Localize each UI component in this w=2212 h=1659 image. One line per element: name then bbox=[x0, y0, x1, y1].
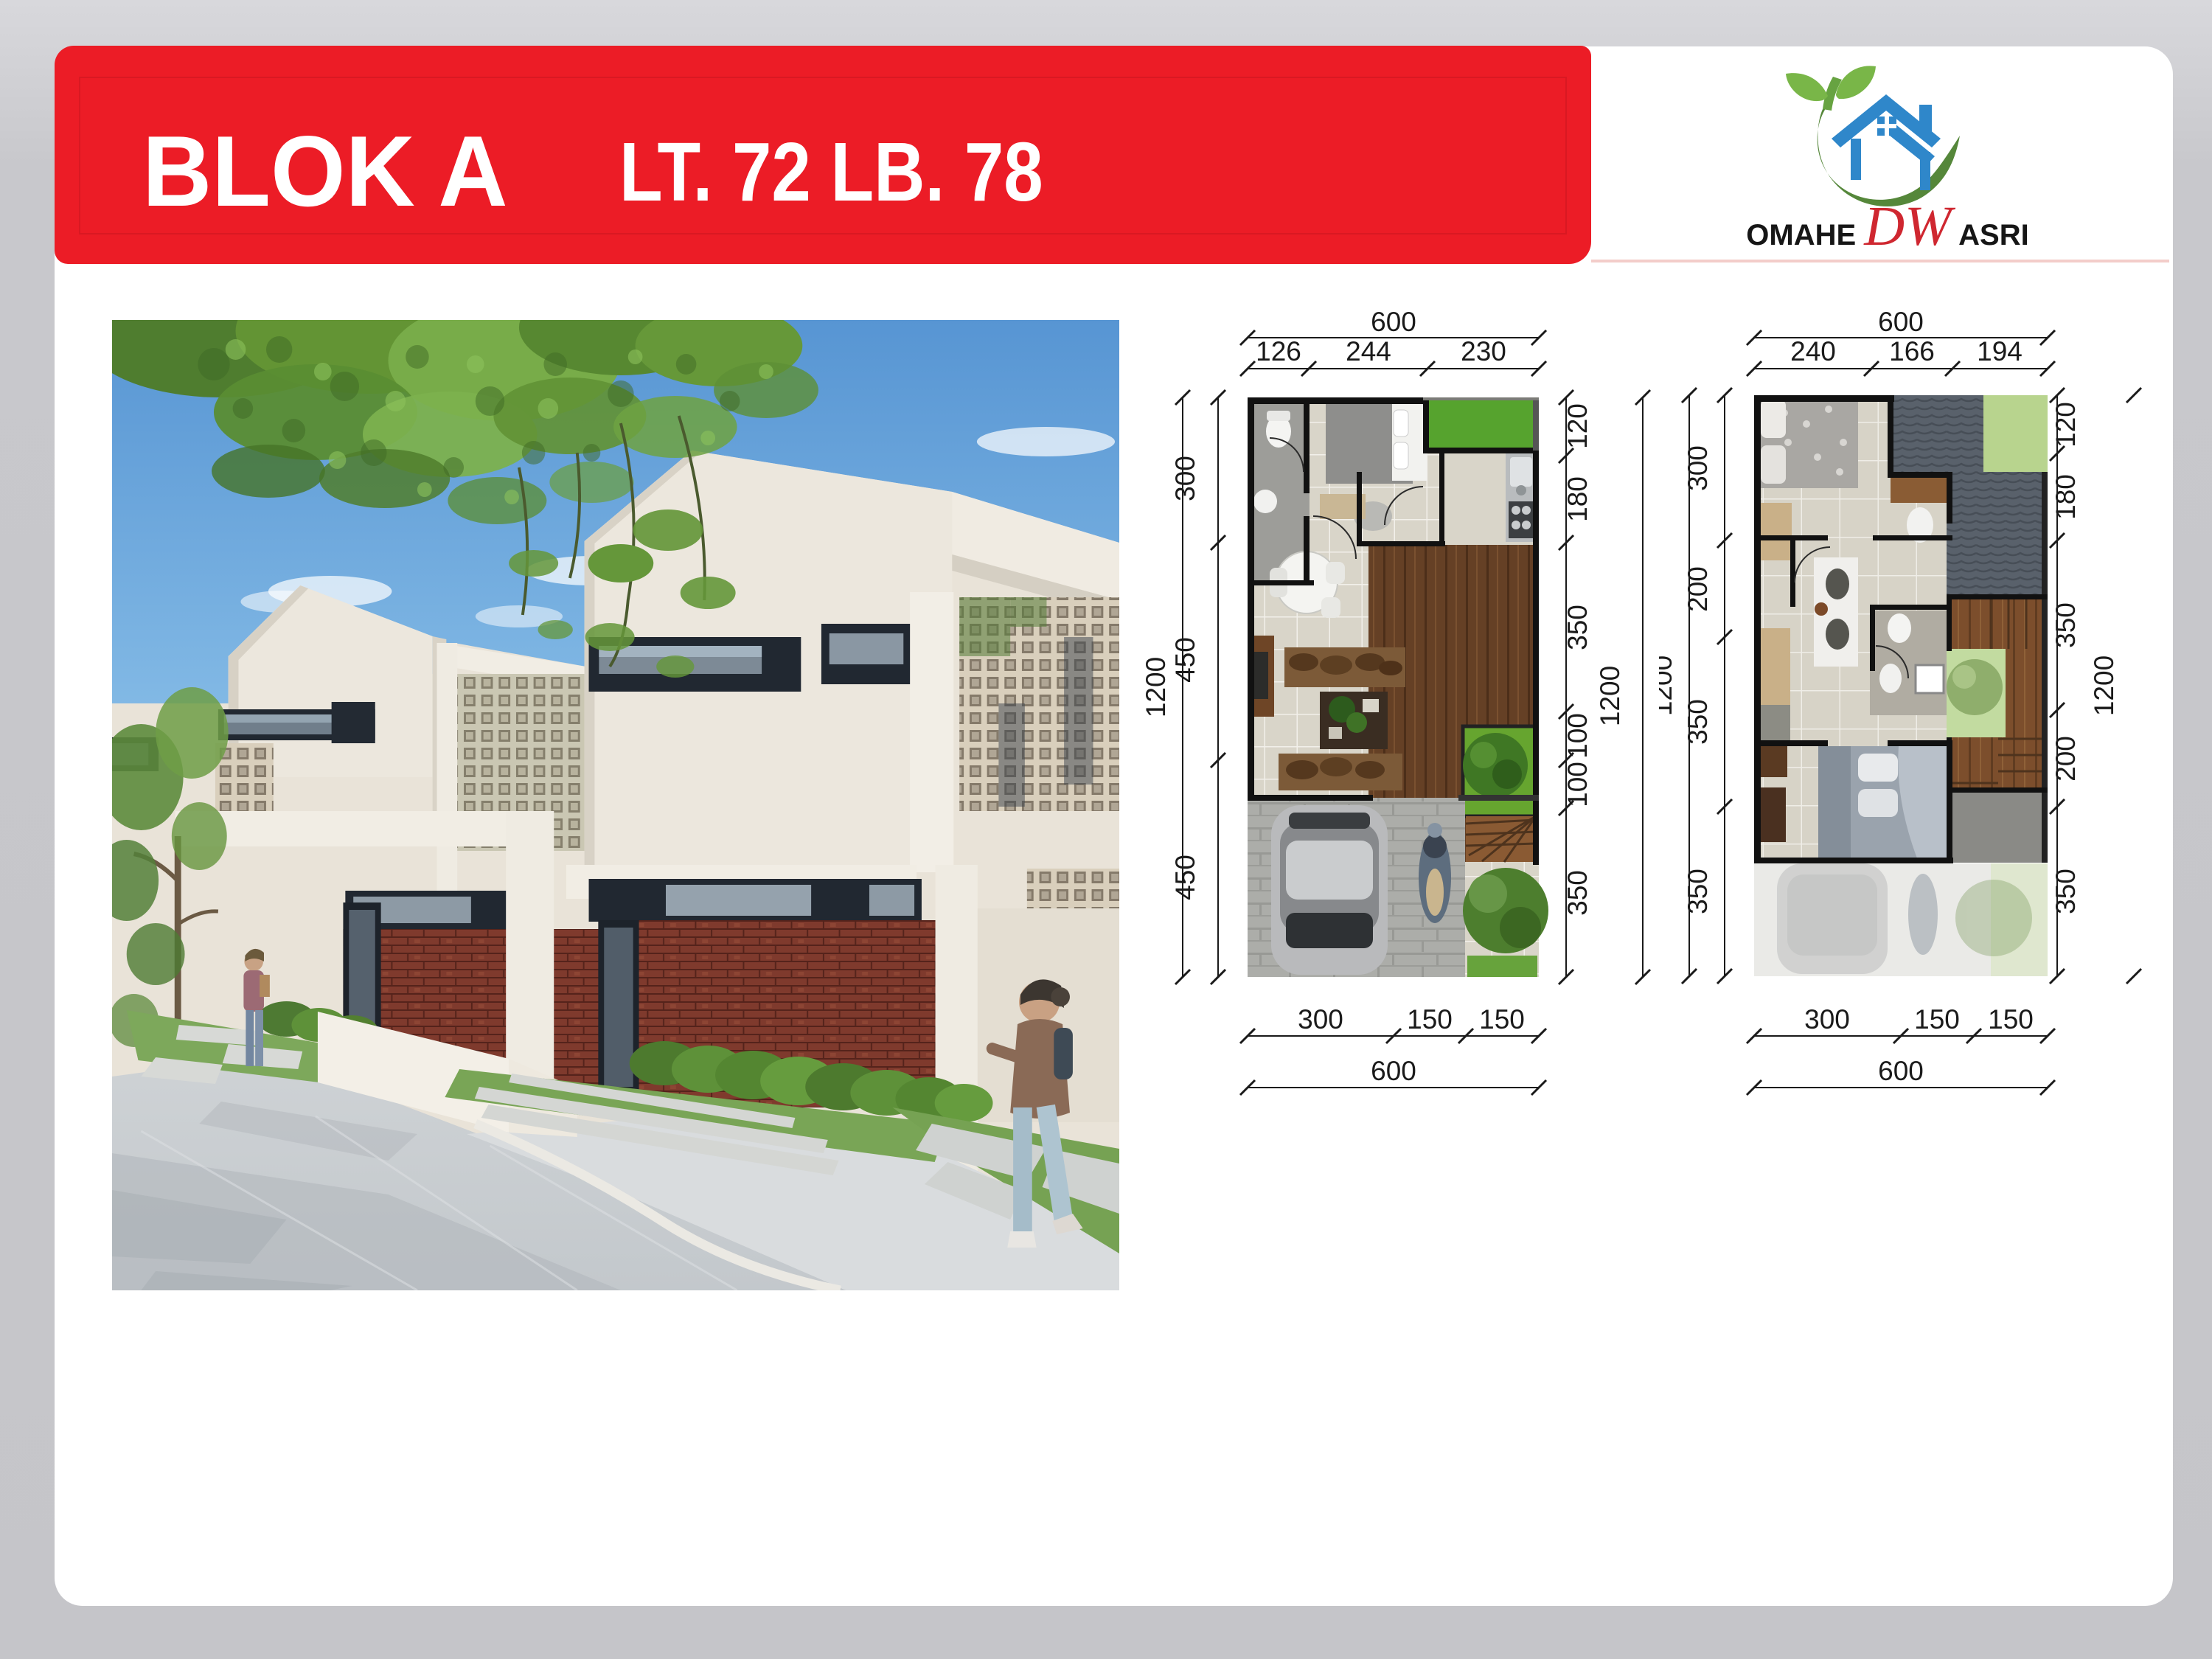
svg-text:600: 600 bbox=[1878, 307, 1924, 337]
svg-text:450: 450 bbox=[1170, 637, 1200, 683]
svg-text:100: 100 bbox=[1562, 762, 1593, 807]
svg-text:194: 194 bbox=[1977, 336, 2023, 366]
svg-text:150: 150 bbox=[1988, 1004, 2034, 1034]
svg-text:300: 300 bbox=[1683, 445, 1713, 491]
svg-text:1200: 1200 bbox=[1595, 666, 1625, 726]
svg-text:200: 200 bbox=[1683, 566, 1713, 612]
svg-text:350: 350 bbox=[2051, 869, 2081, 914]
svg-text:1200: 1200 bbox=[2089, 655, 2119, 716]
svg-text:230: 230 bbox=[1461, 336, 1506, 366]
svg-text:150: 150 bbox=[1407, 1004, 1453, 1034]
svg-text:350: 350 bbox=[1683, 699, 1713, 745]
svg-text:600: 600 bbox=[1371, 307, 1416, 337]
svg-text:150: 150 bbox=[1914, 1004, 1960, 1034]
svg-text:120: 120 bbox=[1562, 403, 1593, 449]
svg-text:1200: 1200 bbox=[1141, 657, 1171, 717]
svg-text:450: 450 bbox=[1170, 855, 1200, 900]
svg-text:600: 600 bbox=[1371, 1056, 1416, 1086]
svg-text:180: 180 bbox=[1562, 476, 1593, 522]
svg-text:200: 200 bbox=[2051, 736, 2081, 782]
svg-text:240: 240 bbox=[1790, 336, 1836, 366]
svg-text:244: 244 bbox=[1346, 336, 1391, 366]
svg-text:100: 100 bbox=[1562, 713, 1593, 759]
svg-text:350: 350 bbox=[1683, 869, 1713, 914]
svg-text:350: 350 bbox=[1562, 870, 1593, 916]
svg-text:300: 300 bbox=[1298, 1004, 1343, 1034]
svg-text:350: 350 bbox=[1562, 605, 1593, 650]
svg-text:1200: 1200 bbox=[1659, 655, 1677, 716]
svg-text:120: 120 bbox=[2051, 402, 2081, 448]
svg-text:350: 350 bbox=[2051, 602, 2081, 648]
svg-text:166: 166 bbox=[1889, 336, 1935, 366]
svg-text:180: 180 bbox=[2051, 474, 2081, 520]
svg-text:600: 600 bbox=[1878, 1056, 1924, 1086]
svg-text:126: 126 bbox=[1256, 336, 1301, 366]
svg-text:300: 300 bbox=[1170, 456, 1200, 501]
svg-text:150: 150 bbox=[1479, 1004, 1525, 1034]
svg-text:300: 300 bbox=[1804, 1004, 1850, 1034]
